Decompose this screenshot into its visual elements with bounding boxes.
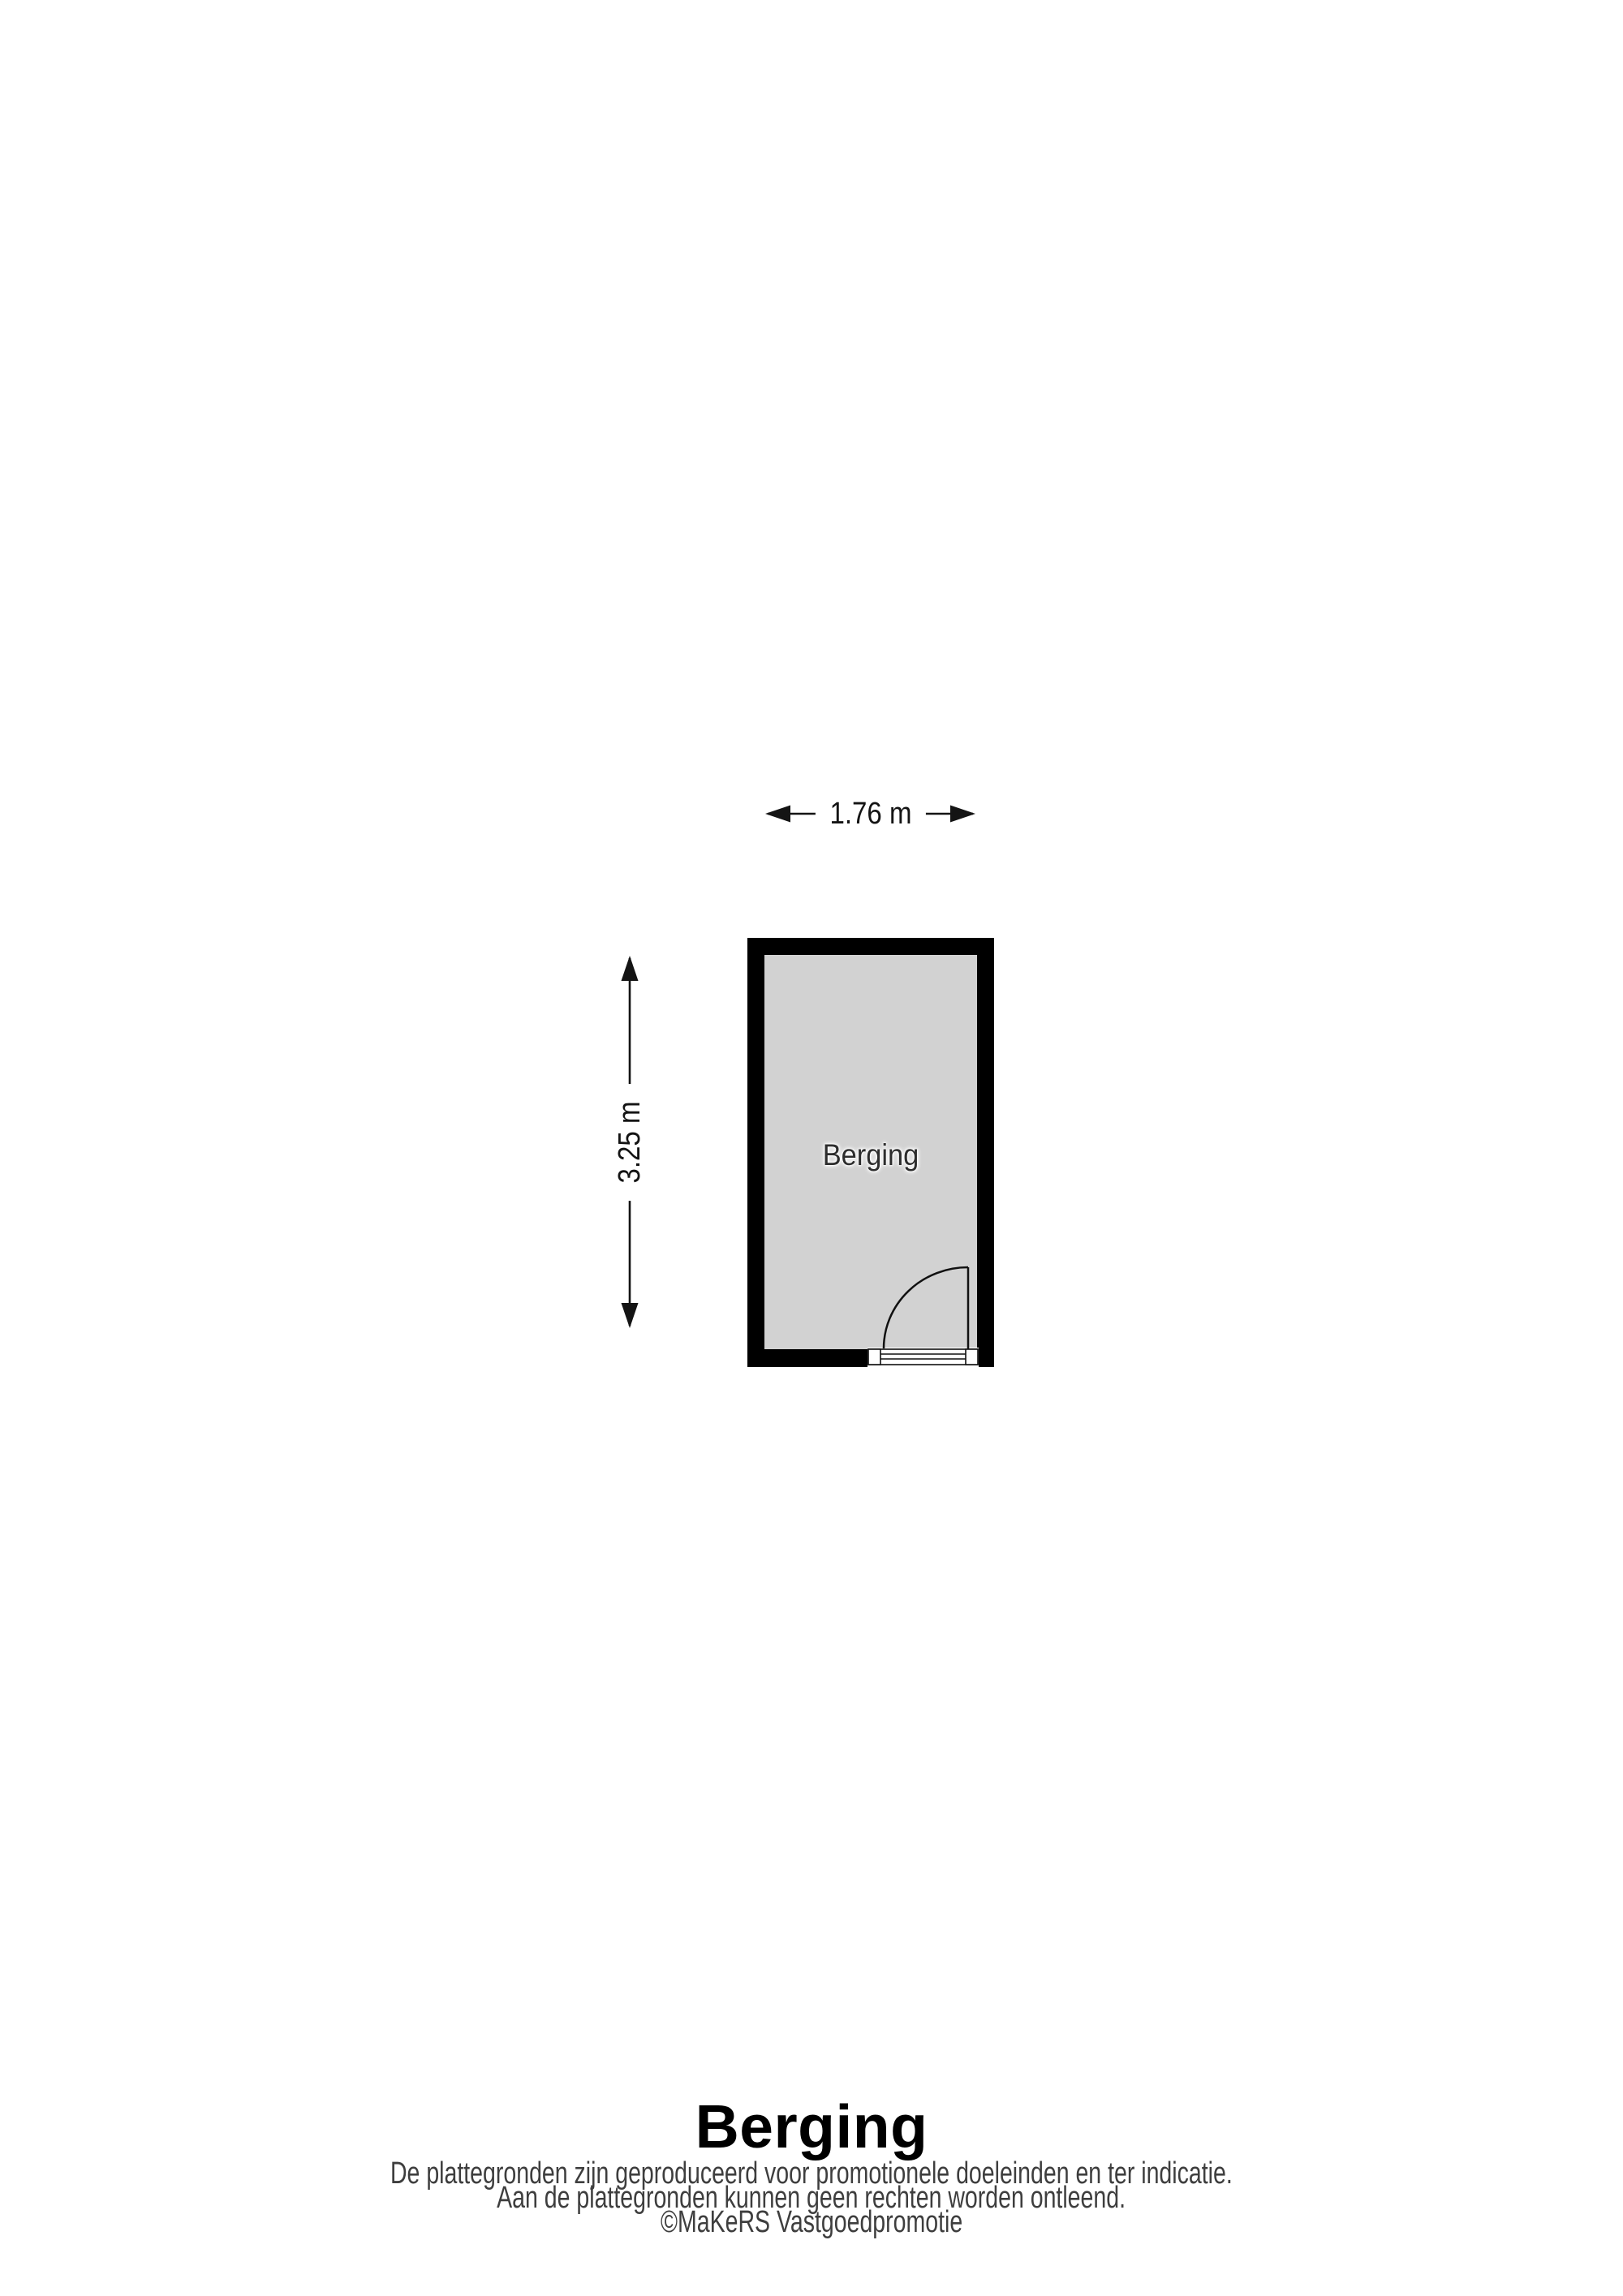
width-dimension-value: 1.76 m	[829, 796, 911, 832]
door-threshold	[868, 1349, 978, 1365]
width-dimension-label: 1.76 m	[816, 796, 926, 832]
arrowhead-up-icon	[622, 956, 639, 981]
height-dimension-label: 3.25 m	[612, 1084, 648, 1201]
floorplan-drawing	[0, 0, 1623, 2296]
credit-line: ©MaKeRS Vastgoedpromotie	[0, 2210, 1623, 2234]
room-label-text: Berging	[823, 1138, 919, 1172]
floorplan-page: 1.76 m 3.25 m Berging Berging De platteg…	[0, 0, 1623, 2296]
arrowhead-right-icon	[950, 806, 975, 823]
room-label: Berging	[819, 1138, 923, 1172]
height-dimension-value: 3.25 m	[612, 1101, 648, 1183]
plan-title: Berging	[0, 2096, 1623, 2157]
arrowhead-left-icon	[765, 806, 790, 823]
door-jamb-right	[966, 1349, 978, 1365]
disclaimer-footer: De plattegronden zijn geproduceerd voor …	[0, 2161, 1623, 2234]
door-jamb-left	[868, 1349, 880, 1365]
arrowhead-down-icon	[622, 1303, 639, 1328]
